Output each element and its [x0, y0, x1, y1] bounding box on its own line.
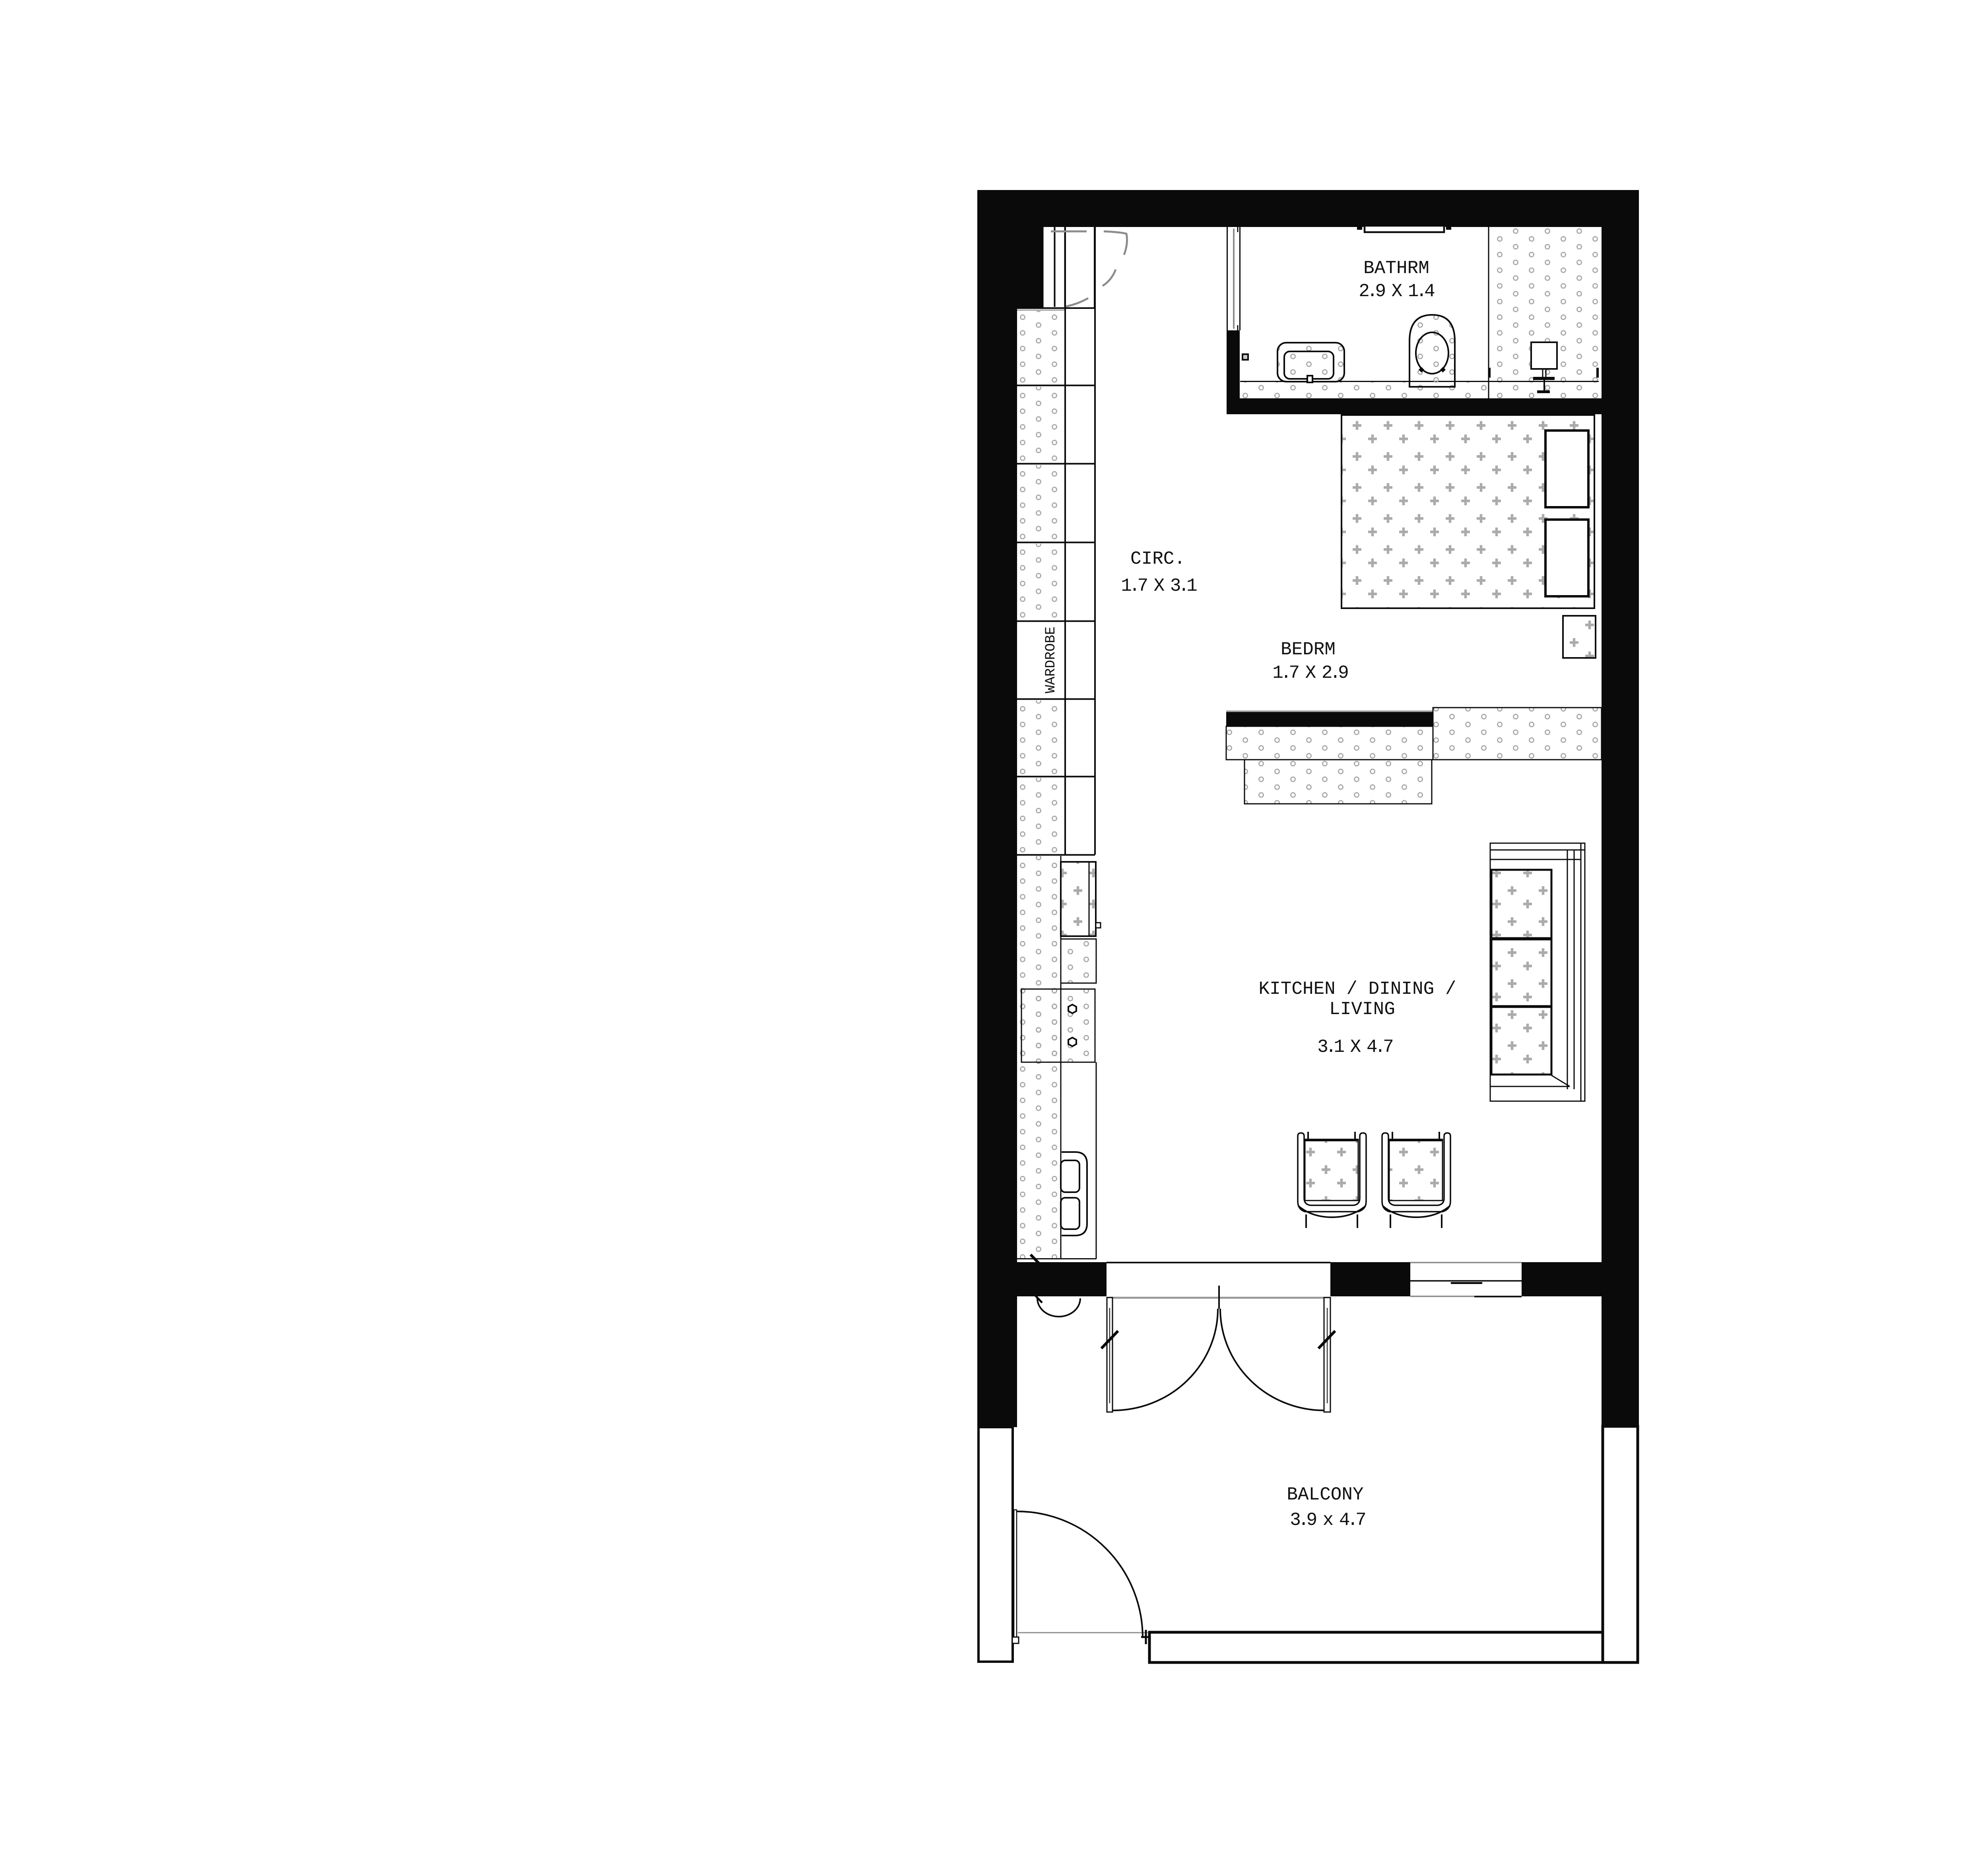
svg-text:CIRC.: CIRC. — [1130, 549, 1185, 569]
svg-text:BALCONY: BALCONY — [1287, 1484, 1363, 1505]
svg-text:BATHRM: BATHRM — [1363, 258, 1429, 279]
svg-text:LIVING: LIVING — [1329, 999, 1395, 1020]
svg-text:3.9 x 4.7: 3.9 x 4.7 — [1290, 1510, 1365, 1530]
svg-text:BEDRM: BEDRM — [1281, 639, 1336, 660]
svg-text:1.7 X 3.1: 1.7 X 3.1 — [1121, 576, 1197, 596]
svg-text:2.9 X 1.4: 2.9 X 1.4 — [1359, 281, 1435, 302]
svg-text:KITCHEN / DINING /: KITCHEN / DINING / — [1259, 979, 1456, 999]
svg-text:1.7 X 2.9: 1.7 X 2.9 — [1272, 663, 1348, 683]
svg-text:3.1 X 4.7: 3.1 X 4.7 — [1317, 1037, 1393, 1057]
svg-text:WARDROBE: WARDROBE — [1043, 627, 1059, 693]
